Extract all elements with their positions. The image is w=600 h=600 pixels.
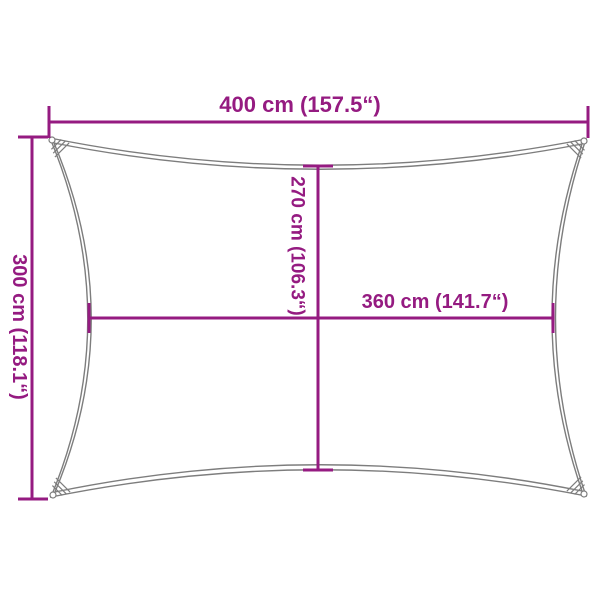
corner-tip-icon [50,492,56,498]
dimension-diagram: 400 cm (157.5“) 300 cm (118.1“) 270 cm (… [0,0,600,600]
inner-height-label: 270 cm (106.3“) [288,176,307,315]
corner-tip-icon [581,138,587,144]
outer-width-label: 400 cm (157.5“) [219,94,380,116]
outer-height-label: 300 cm (118.1“) [9,254,29,400]
corner-tip-icon [581,491,587,497]
inner-width-label: 360 cm (141.7“) [362,292,509,312]
